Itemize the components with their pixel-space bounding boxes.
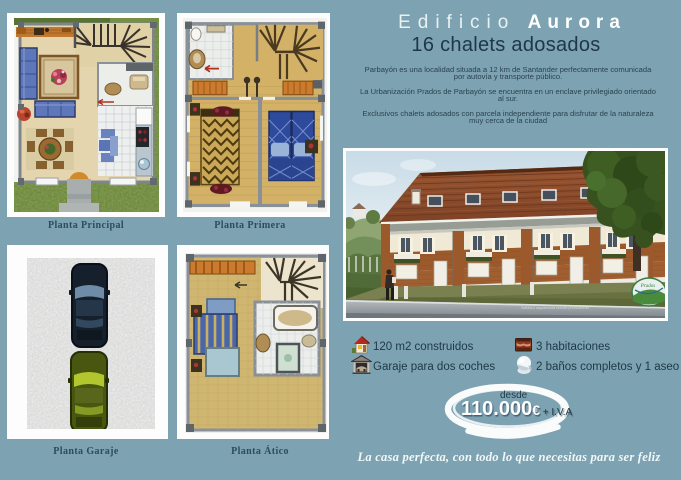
svg-text:SdBMcV arquitectura estudio pr: SdBMcV arquitectura estudio promociones xyxy=(521,306,589,310)
svg-text:Prados: Prados xyxy=(640,284,656,289)
